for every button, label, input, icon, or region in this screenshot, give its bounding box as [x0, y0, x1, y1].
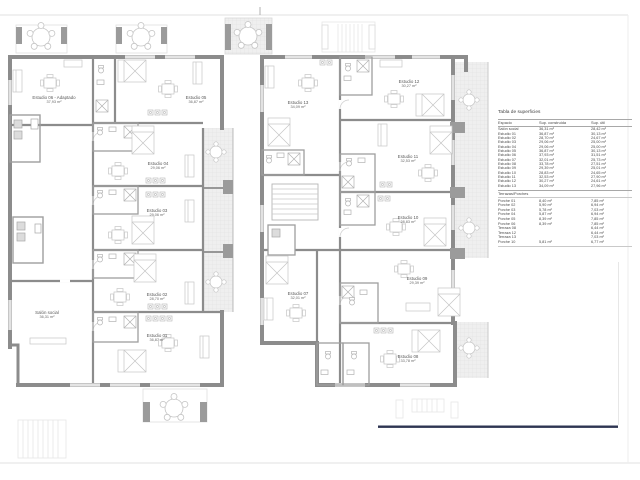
room-area: 32,01 m²: [288, 296, 309, 301]
room-area: 36,87 m²: [186, 100, 207, 105]
table-row: Estudio 13 34,09 m² 27,96 m²: [498, 184, 632, 188]
areas-table: Tabla de superficies Espacio Sup. constr…: [498, 110, 632, 247]
terraces-rows: Porche 01 8,40 m² 7,85 m² Porche 02 5,90…: [498, 199, 632, 247]
table-row: Porche 10 5,81 m² 6,77 m²: [498, 240, 632, 245]
room-area: 36,87 m²: [147, 338, 168, 343]
row-useful: 27,96 m²: [591, 184, 632, 188]
room-area: 36,31 m²: [35, 315, 59, 320]
room-label: Estudio 10 28,83 m²: [398, 215, 419, 225]
room-area: 28,70 m²: [147, 297, 168, 302]
room-area: 28,83 m²: [398, 220, 419, 225]
room-label: Estudio 12 30,27 m²: [399, 79, 420, 89]
room-area: 33,78 m²: [398, 359, 419, 364]
room-area: 37,93 m²: [32, 100, 75, 105]
column-espacio: Espacio: [498, 121, 539, 126]
row-space: Estudio 13: [498, 184, 539, 188]
room-label: Estudio 07 32,01 m²: [288, 291, 309, 301]
room-label: Estudio 11 32,53 m²: [398, 154, 418, 164]
row-built: 34,09 m²: [539, 184, 591, 188]
areas-table-header: Espacio Sup. construida Sup. útil: [498, 121, 632, 127]
room-area: 29,06 m²: [147, 213, 168, 218]
room-label: Estudio 09 29,39 m²: [407, 276, 428, 286]
terraces-section-title: Terrazas/Porches: [498, 190, 632, 198]
room-label: Estudio 08 33,78 m²: [398, 354, 419, 364]
column-sup-util: Sup. útil: [591, 121, 632, 126]
room-label: Estudio 04 29,06 m²: [148, 161, 169, 171]
room-area: 29,06 m²: [148, 166, 169, 171]
room-area: 32,53 m²: [398, 159, 418, 164]
room-area: 30,27 m²: [399, 84, 420, 89]
right-bathrooms: [262, 57, 378, 385]
room-label: Estudio 13 34,09 m²: [288, 100, 309, 110]
room-label: Estudio 02 28,70 m²: [147, 292, 168, 302]
left-building: [10, 57, 233, 385]
porch-table-icon: [27, 23, 55, 50]
row-built: 5,81 m²: [539, 240, 591, 245]
door-arcs: [93, 132, 102, 331]
room-label: Salón social 36,31 m²: [35, 310, 59, 320]
row-space: Porche 10: [498, 240, 539, 245]
room-area: 34,09 m²: [288, 105, 309, 110]
areas-table-title: Tabla de superficies: [498, 110, 632, 120]
row-useful: 6,77 m²: [591, 240, 632, 245]
navy-boundary-line: [378, 426, 618, 428]
column-sup-construida: Sup. construida: [539, 121, 591, 126]
neighbour-faint-elements: [18, 22, 458, 458]
stairwell: [268, 184, 318, 255]
floorplan-sheet: Estudio 06 - Adaptado 37,93 m² Estudio 0…: [0, 0, 640, 480]
room-label: Estudio 06 - Adaptado 37,93 m²: [32, 95, 75, 105]
room-area: 29,39 m²: [407, 281, 428, 286]
left-furniture: [13, 60, 226, 372]
porch-table-icon: [160, 394, 188, 421]
porch-table-icon: [127, 23, 155, 50]
room-label: Estudio 01 36,87 m²: [147, 333, 168, 343]
spaces-rows: Salón social 36,31 m² 28,42 m² Estudio 0…: [498, 127, 632, 188]
room-label: Estudio 03 29,06 m²: [147, 208, 168, 218]
room-label: Estudio 05 36,87 m²: [186, 95, 207, 105]
